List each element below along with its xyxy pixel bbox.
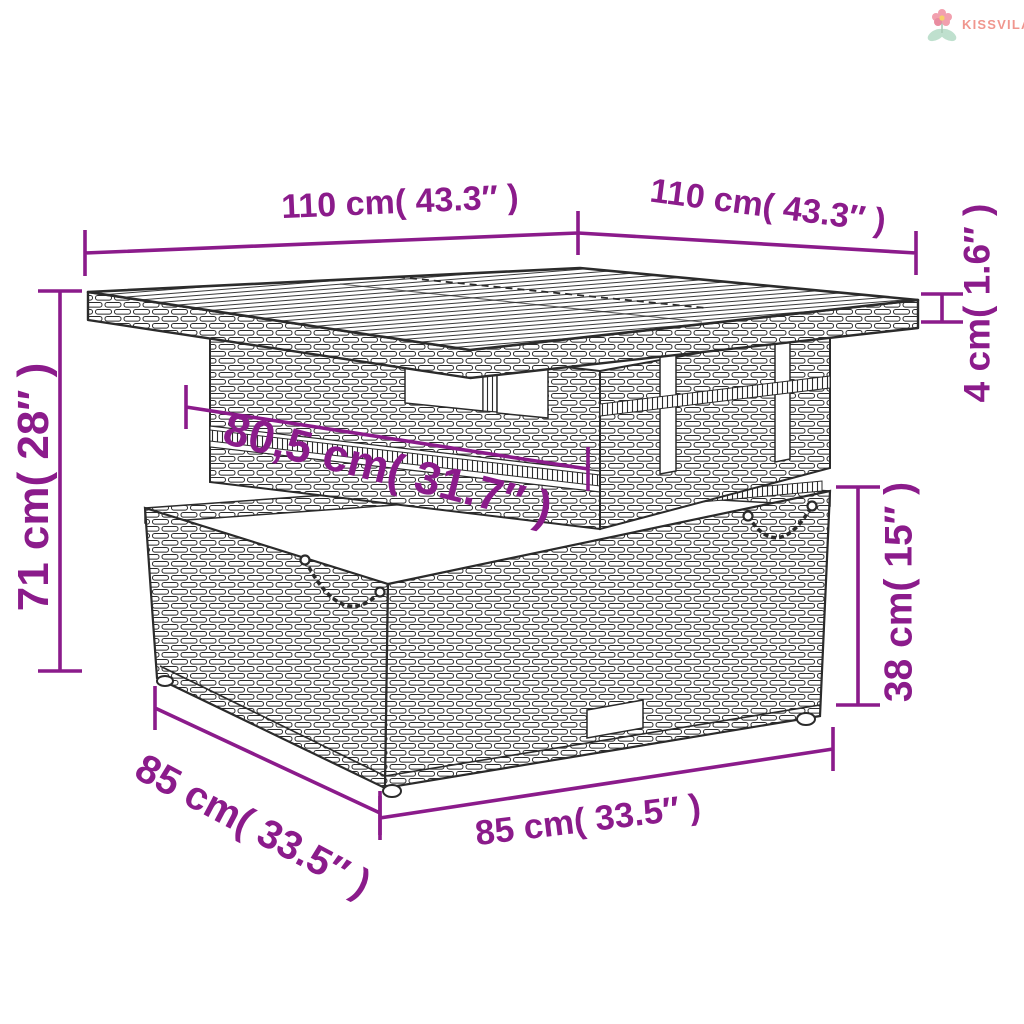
foot	[157, 676, 173, 686]
dim-label-total-height: 71 cm( 28″ )	[12, 363, 56, 612]
brand-logo: KISSVILÁG	[926, 6, 1024, 42]
foot	[797, 713, 815, 725]
foot	[383, 785, 401, 797]
dim-label-tabletop-thickness: 4 cm( 1.6″ )	[959, 204, 996, 403]
brand-name: KISSVILÁG	[962, 17, 1024, 32]
dim-line-base-height	[836, 487, 880, 705]
product-dimension-diagram: 110 cm( 43.3″ ) 110 cm( 43.3″ ) 71 cm( 2…	[0, 0, 1024, 1024]
dim-label-base-height: 38 cm( 15″ )	[880, 482, 919, 702]
flower-icon	[926, 6, 958, 42]
